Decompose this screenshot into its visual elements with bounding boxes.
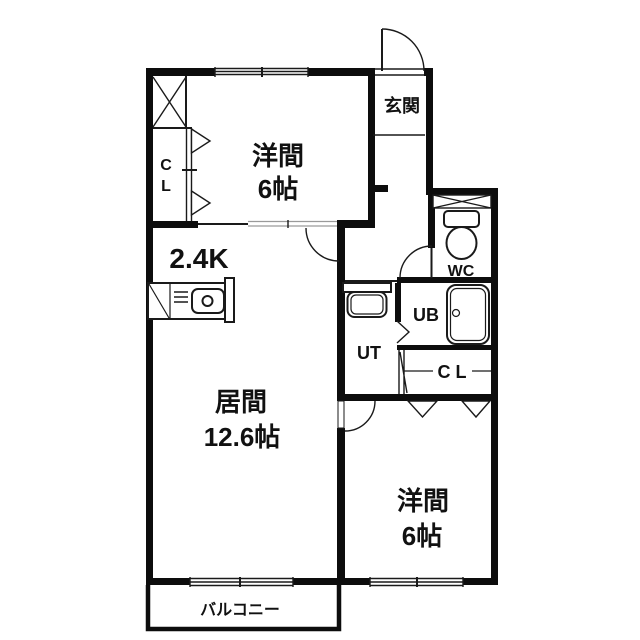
wall-bedroom1-right — [368, 76, 375, 222]
wall-bedroom2-top — [345, 394, 498, 401]
wc-label: WC — [448, 263, 475, 280]
pipe-space-box — [153, 76, 192, 128]
bedroom1-name-label: 洋間 — [252, 141, 304, 171]
wc-door-swing-arc — [400, 246, 432, 278]
wall-top-right-stub — [424, 68, 433, 76]
entrance-label: 玄関 — [384, 95, 420, 116]
wall-hall-stub — [370, 185, 388, 192]
wall-hall-top-block — [337, 220, 375, 228]
closet-bedroom1 — [182, 128, 210, 221]
washbasin — [343, 283, 391, 317]
utility-label: UT — [357, 343, 381, 363]
window-bedroom1-top — [215, 67, 308, 77]
wall-ub-bottom — [397, 345, 498, 350]
living-size-label: 12.6帖 — [204, 422, 281, 452]
wall-ub-left — [395, 283, 401, 322]
closet1-folding-door-bottom — [192, 191, 211, 215]
wall-living-right-upper — [337, 227, 345, 401]
balcony-label: バルコニー — [200, 601, 280, 619]
wall-bottom-2 — [293, 578, 370, 585]
toilet — [444, 211, 479, 259]
living-room-door — [306, 228, 339, 261]
window-living-bottom — [190, 577, 293, 587]
wall-entrance-right — [426, 76, 433, 195]
bedroom2-size-label: 6帖 — [402, 521, 442, 551]
closet2-folding-door-left — [408, 401, 437, 417]
entrance-door — [382, 29, 424, 71]
bedroom1-size-label: 6帖 — [258, 174, 298, 204]
living-door-swing-arc — [306, 228, 339, 261]
wc-shelf — [433, 195, 491, 208]
closet2-folding-door-right — [462, 401, 490, 417]
unit-bath-label: UB — [413, 305, 439, 325]
boundary-lines — [198, 135, 425, 281]
entrance-door-swing-arc — [382, 29, 424, 71]
bedroom2-door — [338, 401, 375, 431]
bedroom2-name-label: 洋間 — [397, 486, 449, 516]
living-name-label: 居間 — [215, 387, 267, 417]
wall-wc-top — [426, 188, 498, 195]
wall-left — [146, 68, 153, 585]
wall-top-left — [146, 68, 215, 76]
bedroom2-door-swing-arc — [345, 401, 375, 431]
bedroom2-door-leaf — [338, 401, 344, 428]
closet1-label-c: C — [160, 157, 172, 174]
counter-end-panel — [225, 278, 234, 322]
closet1-folding-door-top — [192, 129, 211, 153]
washbasin-counter — [343, 283, 391, 292]
toilet-tank — [444, 211, 479, 227]
wc-door — [400, 246, 432, 278]
bathtub — [447, 285, 489, 344]
closet1-label-l: L — [161, 178, 171, 195]
bath-folding-door — [397, 321, 409, 343]
wall-living-right-lower — [337, 428, 345, 578]
wall-right — [491, 195, 498, 585]
floorplan-canvas: 洋間 6帖 玄関 C L 2.4K WC UB UT C L 居間 12.6帖 … — [0, 0, 640, 640]
closet2-label: C L — [438, 362, 467, 382]
closet-bedroom2 — [399, 350, 491, 417]
floorplan-drawing: 洋間 6帖 玄関 C L 2.4K WC UB UT C L 居間 12.6帖 … — [0, 0, 640, 640]
kitchen-counter — [148, 278, 234, 322]
toilet-bowl — [447, 227, 477, 259]
window-bedroom2-bottom — [370, 577, 463, 587]
wall-bedroom1-bottom — [146, 221, 198, 228]
kitchen-label: 2.4K — [169, 243, 228, 274]
wall-bottom-1 — [146, 578, 190, 585]
sliding-door-bedroom1-living — [248, 220, 337, 228]
wall-bottom-3 — [463, 578, 498, 585]
kitchen-faucet — [203, 296, 213, 306]
wall-top-mid — [308, 68, 378, 76]
